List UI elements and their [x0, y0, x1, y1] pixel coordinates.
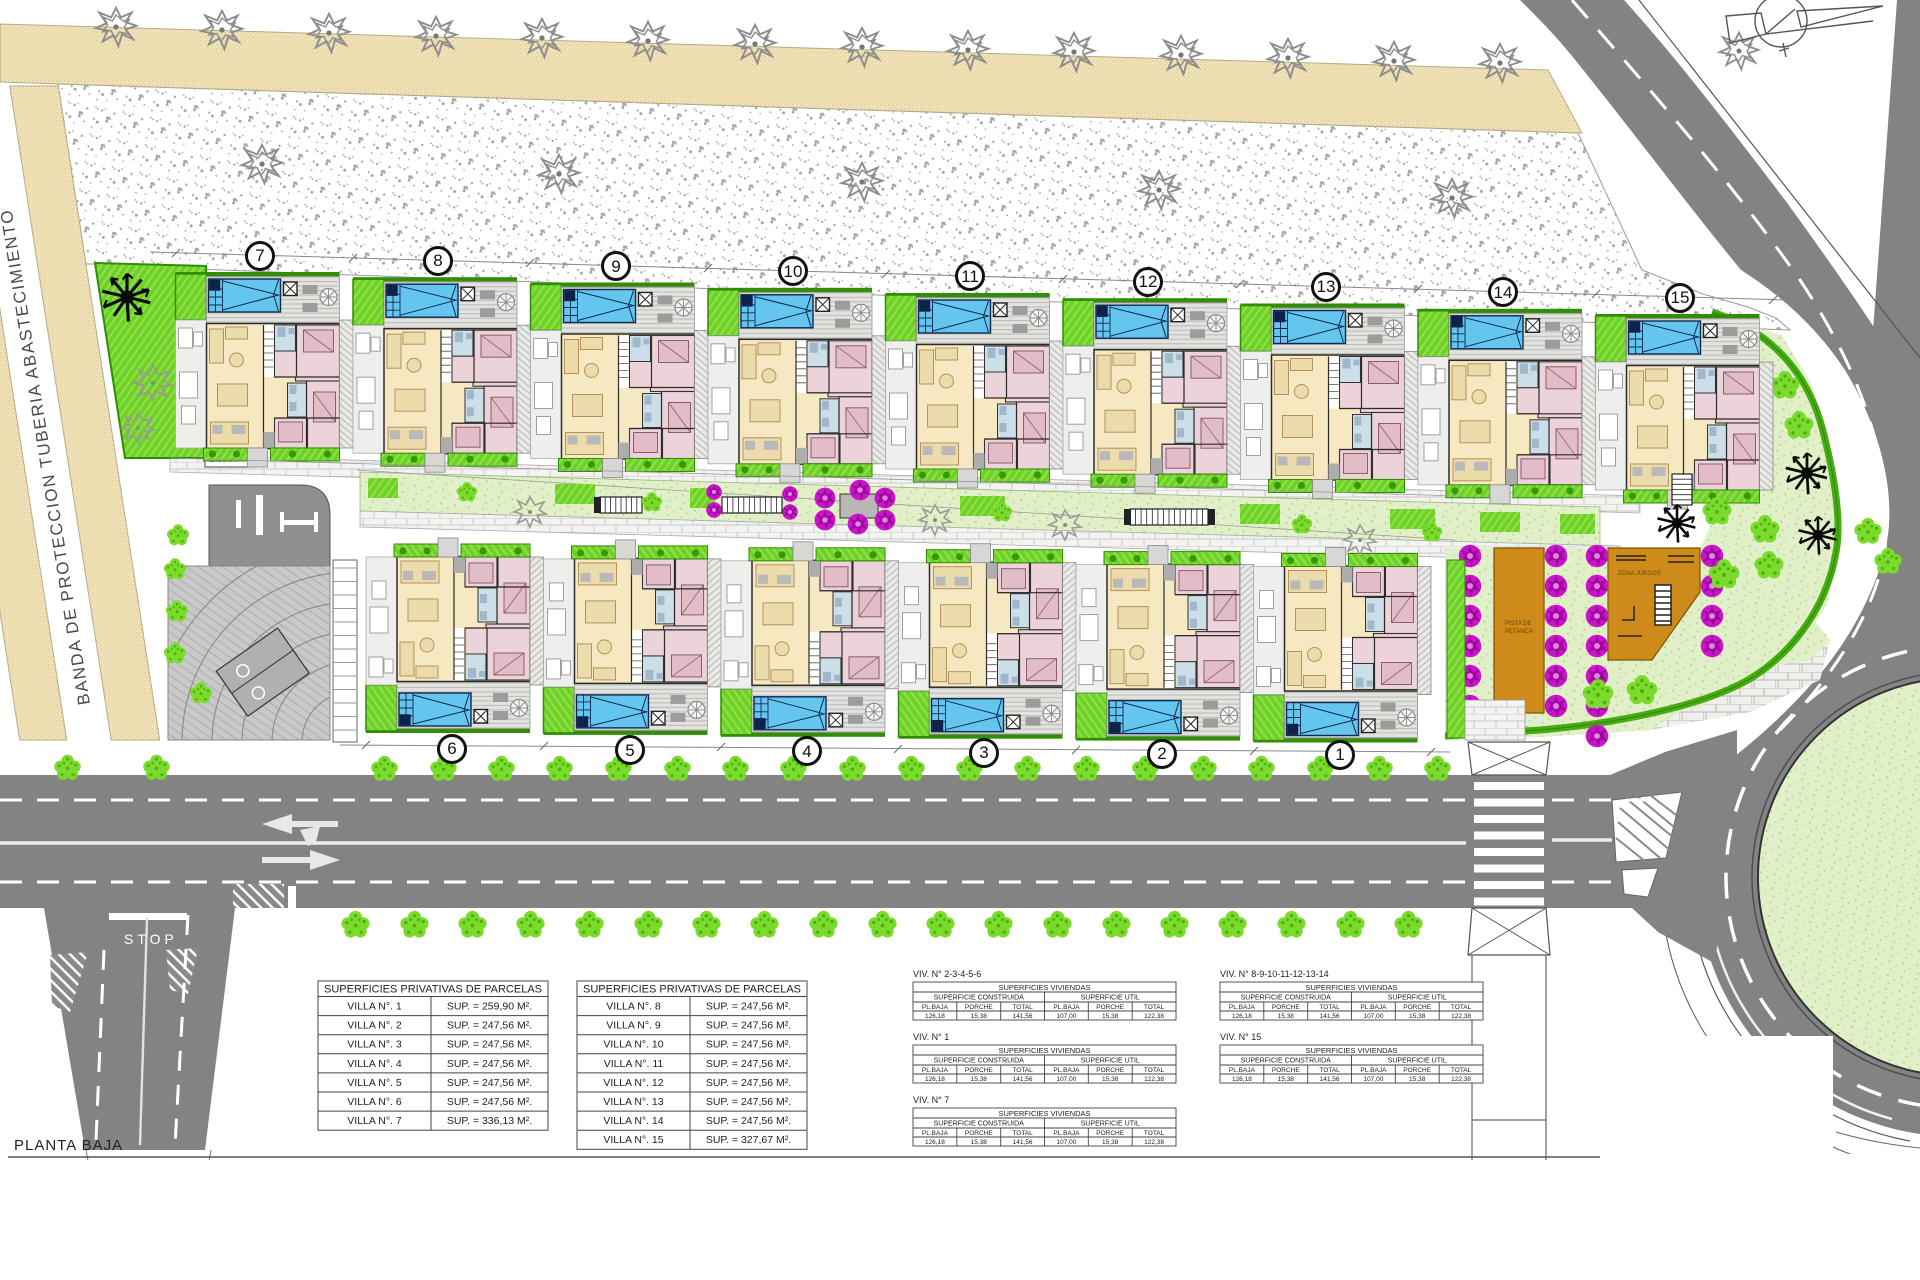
- svg-text:PORCHE: PORCHE: [965, 1130, 993, 1137]
- svg-text:PL.BAJA: PL.BAJA: [1053, 1004, 1080, 1011]
- svg-text:PL.BAJA: PL.BAJA: [1053, 1130, 1080, 1137]
- svg-text:PORCHE: PORCHE: [1272, 1004, 1300, 1011]
- svg-text:TOTAL: TOTAL: [1012, 1130, 1033, 1137]
- svg-text:SUPERFICIE CONSTRUIDA: SUPERFICIE CONSTRUIDA: [934, 1058, 1025, 1065]
- svg-text:SUP. = 247,56 M².: SUP. = 247,56 M².: [447, 1096, 532, 1108]
- svg-text:VILLA N°. 2: VILLA N°. 2: [347, 1020, 402, 1032]
- svg-text:126,18: 126,18: [925, 1013, 945, 1020]
- svg-text:SUPERFICIES PRIVATIVAS DE PARC: SUPERFICIES PRIVATIVAS DE PARCELAS: [583, 984, 801, 996]
- svg-text:SUP. = 336,13 M².: SUP. = 336,13 M².: [447, 1115, 532, 1127]
- svg-text:141,56: 141,56: [1320, 1013, 1340, 1020]
- svg-text:13: 13: [1317, 277, 1336, 296]
- svg-text:PISTA DE: PISTA DE: [1505, 621, 1532, 627]
- svg-text:141,56: 141,56: [1320, 1076, 1340, 1083]
- svg-text:107,00: 107,00: [1056, 1139, 1076, 1146]
- svg-text:SUPERFICIES VIVIENDAS: SUPERFICIES VIVIENDAS: [998, 1109, 1090, 1118]
- svg-text:PL.BAJA: PL.BAJA: [1229, 1004, 1256, 1011]
- svg-text:122,38: 122,38: [1451, 1013, 1471, 1020]
- svg-text:4: 4: [802, 742, 811, 761]
- svg-text:VILLA N°. 4: VILLA N°. 4: [347, 1058, 402, 1070]
- svg-text:VIV. N° 1: VIV. N° 1: [913, 1032, 949, 1042]
- svg-text:15,38: 15,38: [1278, 1076, 1295, 1083]
- svg-text:PL.BAJA: PL.BAJA: [922, 1004, 949, 1011]
- svg-text:2: 2: [1157, 744, 1166, 763]
- svg-text:126,18: 126,18: [1232, 1076, 1252, 1083]
- svg-text:15,38: 15,38: [1278, 1013, 1295, 1020]
- svg-text:VILLA N°. 1: VILLA N°. 1: [347, 1001, 402, 1013]
- svg-text:SUPERFICIES PRIVATIVAS DE PARC: SUPERFICIES PRIVATIVAS DE PARCELAS: [324, 984, 542, 996]
- svg-text:TOTAL: TOTAL: [1012, 1004, 1033, 1011]
- svg-text:126,18: 126,18: [925, 1139, 945, 1146]
- svg-text:SUP. = 247,56 M².: SUP. = 247,56 M².: [706, 1058, 791, 1070]
- svg-text:STOP: STOP: [124, 931, 178, 947]
- svg-text:PORCHE: PORCHE: [1096, 1067, 1124, 1074]
- svg-text:SUPERFICIES VIVIENDAS: SUPERFICIES VIVIENDAS: [998, 1046, 1090, 1055]
- svg-text:141,56: 141,56: [1013, 1076, 1033, 1083]
- svg-text:15,38: 15,38: [971, 1076, 988, 1083]
- svg-text:VIV. N° 7: VIV. N° 7: [913, 1095, 949, 1105]
- svg-text:9: 9: [611, 257, 620, 276]
- svg-text:SUP. = 247,56 M².: SUP. = 247,56 M².: [706, 1115, 791, 1127]
- svg-text:SUP. = 247,56 M².: SUP. = 247,56 M².: [706, 1096, 791, 1108]
- svg-text:VILLA N°. 11: VILLA N°. 11: [604, 1058, 664, 1070]
- svg-text:VILLA N°. 10: VILLA N°. 10: [603, 1039, 663, 1051]
- svg-text:PORCHE: PORCHE: [1096, 1004, 1124, 1011]
- svg-text:141,56: 141,56: [1013, 1013, 1033, 1020]
- svg-text:VILLA N°. 9: VILLA N°. 9: [606, 1020, 661, 1032]
- svg-text:SUP. = 247,56 M².: SUP. = 247,56 M².: [706, 1020, 791, 1032]
- svg-text:11: 11: [961, 267, 979, 286]
- svg-text:SUP. = 247,56 M².: SUP. = 247,56 M².: [706, 1077, 791, 1089]
- svg-text:15,38: 15,38: [1102, 1076, 1119, 1083]
- svg-text:SUPERFICIE CONSTRUIDA: SUPERFICIE CONSTRUIDA: [934, 995, 1025, 1002]
- svg-text:107,00: 107,00: [1056, 1076, 1076, 1083]
- svg-text:ZONA JUEGOS: ZONA JUEGOS: [1618, 571, 1661, 577]
- svg-text:107,00: 107,00: [1056, 1013, 1076, 1020]
- svg-text:VILLA N°. 5: VILLA N°. 5: [347, 1077, 402, 1089]
- svg-text:107,00: 107,00: [1363, 1076, 1383, 1083]
- svg-text:PORCHE: PORCHE: [965, 1067, 993, 1074]
- svg-text:PL.BAJA: PL.BAJA: [1053, 1067, 1080, 1074]
- svg-text:SUP. = 259,90 M².: SUP. = 259,90 M².: [447, 1001, 532, 1013]
- svg-text:PL.BAJA: PL.BAJA: [1229, 1067, 1256, 1074]
- svg-text:15,38: 15,38: [1409, 1076, 1426, 1083]
- svg-text:PL.BAJA: PL.BAJA: [1360, 1067, 1387, 1074]
- svg-text:VIV. N° 8-9-10-11-12-13-14: VIV. N° 8-9-10-11-12-13-14: [1220, 969, 1329, 979]
- svg-text:SUPERFICIE CONSTRUIDA: SUPERFICIE CONSTRUIDA: [1241, 995, 1332, 1002]
- svg-text:TOTAL: TOTAL: [1319, 1067, 1340, 1074]
- svg-text:VILLA N°. 6: VILLA N°. 6: [347, 1096, 402, 1108]
- svg-text:SUP. = 247,56 M².: SUP. = 247,56 M².: [447, 1039, 532, 1051]
- svg-text:5: 5: [625, 741, 634, 760]
- svg-text:TOTAL: TOTAL: [1451, 1067, 1472, 1074]
- svg-text:107,00: 107,00: [1363, 1013, 1383, 1020]
- svg-text:PORCHE: PORCHE: [1096, 1130, 1124, 1137]
- svg-text:PL.BAJA: PL.BAJA: [922, 1067, 949, 1074]
- svg-text:15,38: 15,38: [1409, 1013, 1426, 1020]
- svg-text:122,38: 122,38: [1144, 1013, 1164, 1020]
- svg-text:TOTAL: TOTAL: [1144, 1067, 1165, 1074]
- svg-text:SUPERFICIE UTIL: SUPERFICIE UTIL: [1388, 995, 1447, 1002]
- svg-text:15: 15: [1671, 288, 1690, 307]
- svg-text:SUP. = 327,67 M².: SUP. = 327,67 M².: [706, 1134, 791, 1146]
- svg-text:SUP. = 247,56 M².: SUP. = 247,56 M².: [447, 1020, 532, 1032]
- svg-text:SUPERFICIES VIVIENDAS: SUPERFICIES VIVIENDAS: [998, 983, 1090, 992]
- svg-text:122,38: 122,38: [1451, 1076, 1471, 1083]
- svg-text:PORCHE: PORCHE: [1272, 1067, 1300, 1074]
- svg-text:7: 7: [255, 246, 264, 265]
- svg-text:PETANCA: PETANCA: [1505, 629, 1533, 635]
- svg-text:3: 3: [979, 743, 988, 762]
- svg-text:SUP. = 247,56 M².: SUP. = 247,56 M².: [706, 1039, 791, 1051]
- svg-text:SUPERFICIE UTIL: SUPERFICIE UTIL: [1081, 995, 1140, 1002]
- svg-text:SUPERFICIE UTIL: SUPERFICIE UTIL: [1388, 1058, 1447, 1065]
- svg-text:SUPERFICIE UTIL: SUPERFICIE UTIL: [1081, 1121, 1140, 1128]
- svg-text:15,38: 15,38: [971, 1139, 988, 1146]
- svg-text:14: 14: [1494, 283, 1513, 302]
- svg-text:1: 1: [1335, 745, 1344, 764]
- svg-text:SUP. = 247,56 M².: SUP. = 247,56 M².: [447, 1077, 532, 1089]
- svg-text:PL.BAJA: PL.BAJA: [1360, 1004, 1387, 1011]
- svg-text:PORCHE: PORCHE: [1403, 1067, 1431, 1074]
- svg-text:VILLA N°. 15: VILLA N°. 15: [603, 1134, 663, 1146]
- svg-text:SUPERFICIE CONSTRUIDA: SUPERFICIE CONSTRUIDA: [934, 1121, 1025, 1128]
- svg-text:15,38: 15,38: [1102, 1013, 1119, 1020]
- svg-text:141,56: 141,56: [1013, 1139, 1033, 1146]
- svg-text:8: 8: [433, 251, 442, 270]
- svg-text:10: 10: [784, 262, 803, 281]
- svg-text:SUPERFICIES VIVIENDAS: SUPERFICIES VIVIENDAS: [1305, 983, 1397, 992]
- svg-text:TOTAL: TOTAL: [1451, 1004, 1472, 1011]
- svg-text:PL.BAJA: PL.BAJA: [922, 1130, 949, 1137]
- svg-text:15,38: 15,38: [1102, 1139, 1119, 1146]
- svg-text:SUPERFICIE UTIL: SUPERFICIE UTIL: [1081, 1058, 1140, 1065]
- svg-text:126,18: 126,18: [925, 1076, 945, 1083]
- svg-text:TOTAL: TOTAL: [1144, 1130, 1165, 1137]
- svg-text:122,38: 122,38: [1144, 1076, 1164, 1083]
- svg-text:TOTAL: TOTAL: [1012, 1067, 1033, 1074]
- svg-text:VILLA N°. 7: VILLA N°. 7: [347, 1115, 402, 1127]
- svg-text:126,18: 126,18: [1232, 1013, 1252, 1020]
- svg-text:VIV. N° 2-3-4-5-6: VIV. N° 2-3-4-5-6: [913, 969, 981, 979]
- svg-text:6: 6: [447, 739, 456, 758]
- svg-text:122,38: 122,38: [1144, 1139, 1164, 1146]
- svg-text:VILLA N°. 12: VILLA N°. 12: [603, 1077, 663, 1089]
- svg-text:VILLA N°. 8: VILLA N°. 8: [606, 1001, 661, 1013]
- svg-text:TOTAL: TOTAL: [1319, 1004, 1340, 1011]
- svg-text:TOTAL: TOTAL: [1144, 1004, 1165, 1011]
- svg-text:SUPERFICIES VIVIENDAS: SUPERFICIES VIVIENDAS: [1305, 1046, 1397, 1055]
- svg-text:VIV. N° 15: VIV. N° 15: [1220, 1032, 1261, 1042]
- svg-text:SUPERFICIE CONSTRUIDA: SUPERFICIE CONSTRUIDA: [1241, 1058, 1332, 1065]
- svg-text:15,38: 15,38: [971, 1013, 988, 1020]
- svg-text:PLANTA BAJA: PLANTA BAJA: [14, 1137, 123, 1154]
- svg-text:PORCHE: PORCHE: [1403, 1004, 1431, 1011]
- svg-text:SUP. = 247,56 M².: SUP. = 247,56 M².: [706, 1001, 791, 1013]
- svg-text:SUP. = 247,56 M².: SUP. = 247,56 M².: [447, 1058, 532, 1070]
- svg-text:VILLA N°. 14: VILLA N°. 14: [603, 1115, 663, 1127]
- svg-text:PORCHE: PORCHE: [965, 1004, 993, 1011]
- svg-text:VILLA N°. 13: VILLA N°. 13: [603, 1096, 663, 1108]
- svg-text:VILLA N°. 3: VILLA N°. 3: [347, 1039, 402, 1051]
- svg-text:12: 12: [1139, 272, 1158, 291]
